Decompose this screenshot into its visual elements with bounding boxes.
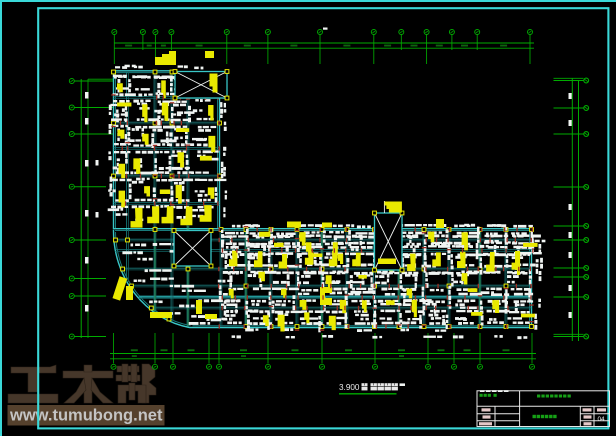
svg-text:04: 04 [598, 416, 606, 423]
svg-text:3.900: 3.900 [339, 383, 360, 392]
svg-text:www.tumubong.net: www.tumubong.net [9, 407, 163, 425]
